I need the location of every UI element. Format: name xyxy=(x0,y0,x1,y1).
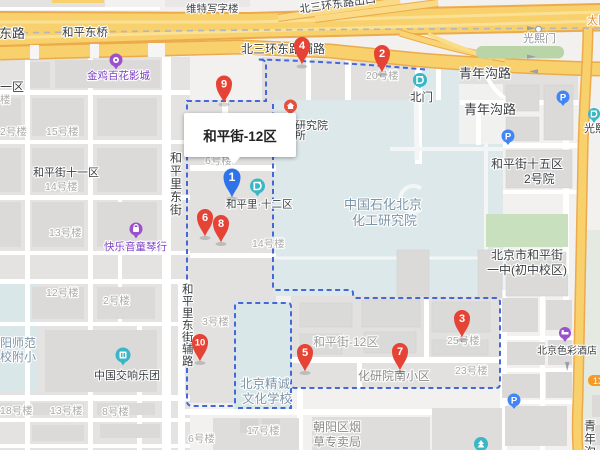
svg-text:12号楼: 12号楼 xyxy=(46,286,79,299)
svg-text:17号楼: 17号楼 xyxy=(247,424,280,437)
svg-text:太阳: 太阳 xyxy=(587,14,600,27)
svg-text:青年沟: 青年沟 xyxy=(584,419,596,450)
svg-text:9: 9 xyxy=(221,79,227,91)
svg-text:7: 7 xyxy=(397,346,403,358)
svg-text:维特写字楼: 维特写字楼 xyxy=(186,2,239,15)
svg-text:一区: 一区 xyxy=(0,80,24,94)
svg-text:北京市和平街: 北京市和平街 xyxy=(491,247,563,262)
svg-text:3号楼: 3号楼 xyxy=(202,315,229,328)
svg-text:校附小: 校附小 xyxy=(0,349,36,364)
svg-text:P: P xyxy=(560,93,567,104)
svg-text:4: 4 xyxy=(299,40,306,52)
svg-text:1: 1 xyxy=(229,170,236,184)
svg-text:14号楼: 14号楼 xyxy=(252,237,285,250)
svg-text:13号楼: 13号楼 xyxy=(50,404,83,417)
svg-text:和平里东街辅路: 和平里东街辅路 xyxy=(182,283,194,368)
svg-text:朝阳区烟: 朝阳区烟 xyxy=(313,420,361,434)
svg-text:13: 13 xyxy=(593,376,600,386)
svg-text:金鸡百花影城: 金鸡百花影城 xyxy=(87,69,150,82)
svg-text:光熙: 光熙 xyxy=(584,121,600,135)
svg-text:北门: 北门 xyxy=(410,90,433,104)
svg-text:中国交响乐团: 中国交响乐团 xyxy=(94,368,160,382)
svg-text:青年沟路: 青年沟路 xyxy=(464,102,516,117)
svg-text:14号楼: 14号楼 xyxy=(45,180,78,193)
svg-text:3: 3 xyxy=(459,313,465,325)
svg-text:所: 所 xyxy=(295,129,306,142)
svg-text:2号楼: 2号楼 xyxy=(0,125,27,138)
svg-text:草专卖局: 草专卖局 xyxy=(313,434,361,449)
svg-text:北三环东路辅路: 北三环东路辅路 xyxy=(241,41,325,56)
svg-text:10: 10 xyxy=(195,338,206,349)
svg-text:2号楼: 2号楼 xyxy=(103,294,130,307)
svg-text:8号楼: 8号楼 xyxy=(102,405,129,418)
svg-text:和平街-12区: 和平街-12区 xyxy=(313,335,378,349)
svg-text:8: 8 xyxy=(218,218,224,230)
svg-text:和平东路: 和平东路 xyxy=(0,26,25,41)
svg-text:光熙门: 光熙门 xyxy=(523,31,556,45)
svg-text:和平街十五区: 和平街十五区 xyxy=(491,157,563,171)
svg-text:6: 6 xyxy=(202,212,208,224)
svg-text:13号楼: 13号楼 xyxy=(49,226,82,239)
svg-text:2: 2 xyxy=(379,48,385,60)
svg-text:中国石化北京: 中国石化北京 xyxy=(344,197,422,212)
svg-text:青年沟路: 青年沟路 xyxy=(459,66,511,81)
svg-text:化研院南小区: 化研院南小区 xyxy=(358,368,430,383)
svg-text:2号院: 2号院 xyxy=(524,172,555,186)
svg-text:18号楼: 18号楼 xyxy=(0,404,33,417)
svg-text:北京精诚: 北京精诚 xyxy=(240,377,291,391)
svg-text:23号楼: 23号楼 xyxy=(455,364,488,377)
svg-text:北京色彩酒店: 北京色彩酒店 xyxy=(537,344,597,357)
svg-text:6号楼: 6号楼 xyxy=(188,432,215,445)
svg-text:和平里东街: 和平里东街 xyxy=(170,151,182,217)
svg-text:楼: 楼 xyxy=(0,93,11,106)
svg-text:15号楼: 15号楼 xyxy=(46,125,79,138)
svg-text:5: 5 xyxy=(302,347,308,359)
svg-text:和平东桥: 和平东桥 xyxy=(62,26,108,39)
svg-text:阳师范: 阳师范 xyxy=(0,336,36,350)
svg-text:快乐音童琴行: 快乐音童琴行 xyxy=(104,240,167,253)
svg-text:一中(初中校区): 一中(初中校区) xyxy=(487,262,567,277)
svg-text:和平街十一区: 和平街十一区 xyxy=(33,165,99,179)
svg-text:化工研究院: 化工研究院 xyxy=(352,213,417,228)
svg-text:P: P xyxy=(511,396,518,407)
svg-text:P: P xyxy=(505,132,512,143)
svg-text:文化学校: 文化学校 xyxy=(242,391,293,406)
